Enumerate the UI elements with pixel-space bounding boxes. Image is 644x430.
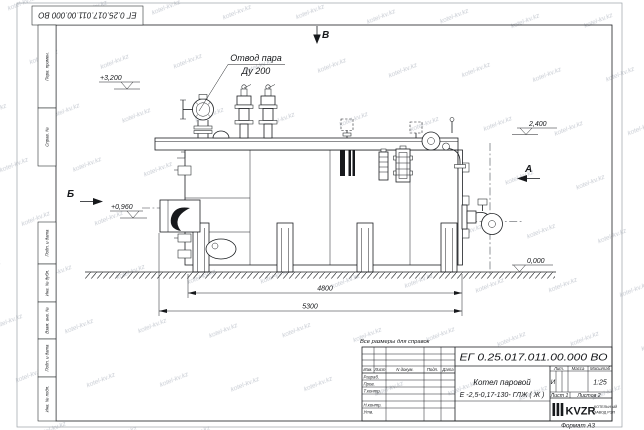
rotated-designation-stamp: ЕГ 0.25.017.011.00.000 ВО [32, 6, 143, 25]
stamp-podp-data-1: Подп. и дата [45, 229, 50, 257]
dimension-text: 4800 [317, 286, 333, 293]
col-data: Дата [441, 367, 454, 372]
product-name-1: Котел паровой [473, 378, 531, 387]
mass-label: Масса [572, 366, 585, 371]
lit-value: И [551, 379, 556, 386]
gauge-glass [349, 150, 352, 176]
row-prov: Пров. [364, 382, 375, 387]
format-label: Формат А3 [561, 423, 595, 430]
dimension-text: 5300 [302, 304, 318, 311]
elevation-label: +0,960 [111, 204, 133, 211]
drawing-sheet: kotel-kv.kz kotel-kv.kz ЕГ 0.25.017.011.… [0, 0, 644, 430]
view-letter: В [322, 30, 329, 41]
designation-text: ЕГ 0.25.017.011.00.000 ВО [460, 353, 608, 364]
scale-label: Масштаб [590, 366, 611, 371]
logo-text: KVZR [566, 406, 596, 418]
view-letter: Б [67, 189, 74, 200]
elevation-label: 0,000 [527, 258, 545, 265]
logo-tagline-2: ЗАВОД РЭП [594, 411, 615, 415]
logo-tagline-1: КОТЕЛЬНЫЙ [594, 405, 617, 409]
col-izm: Изм. [363, 367, 372, 372]
stamp-sprav-no: Справ. № [45, 127, 50, 147]
rotated-designation-text: ЕГ 0.25.017.011.00.000 ВО [38, 11, 136, 20]
sheet-number: Лист 1 [550, 393, 569, 399]
col-podp: Подп. [427, 367, 438, 372]
boiler-general-view-drawing: kotel-kv.kz kotel-kv.kz ЕГ 0.25.017.011.… [0, 0, 644, 430]
door-hinge [463, 229, 470, 238]
top-deck [155, 138, 458, 150]
manhole [206, 239, 236, 259]
sheets-total: Листов 2 [576, 393, 600, 399]
stamp-podp-data-2: Подп. и дата [45, 344, 50, 372]
col-dokum: N докум. [396, 367, 413, 372]
product-name-2: Е -2,5-0,17-130- ГЛЖ ( Ж ) [460, 392, 545, 399]
row-razrab: Разраб. [364, 375, 380, 380]
left-margin-stamps: Перв. примен. Справ. № Подп. и дата Инв.… [38, 25, 56, 421]
stamp-perv-primen: Перв. примен. [45, 52, 50, 81]
view-letter: А [524, 164, 532, 175]
ground-hatch [85, 273, 555, 279]
reference-note: Все размеры для справок [360, 339, 430, 345]
elevation-label: 2,400 [528, 121, 547, 128]
elevation-label: +3,200 [100, 75, 122, 82]
stamp-inv-dubl: Инв. № дубл. [45, 270, 50, 296]
row-utv: Утв. [364, 410, 374, 415]
gauge-glass [340, 150, 345, 176]
gauge-glass [353, 150, 356, 176]
col-list: Лист [373, 367, 385, 372]
row-tkontr: Т.контр. [364, 389, 381, 394]
row-nkontr: Н.контр. [364, 403, 382, 408]
door-hinge [463, 196, 470, 205]
stamp-vzam-inv: Взам. инв. № [45, 307, 50, 334]
stamp-inv-podl: Инв. № подл. [45, 386, 50, 413]
lit-label: Лит. [553, 366, 564, 371]
steam-outlet-text-1: Отвод пара [230, 53, 281, 63]
scale-value: 1:25 [593, 380, 607, 387]
steam-outlet-text-2: Ду 200 [241, 66, 270, 76]
